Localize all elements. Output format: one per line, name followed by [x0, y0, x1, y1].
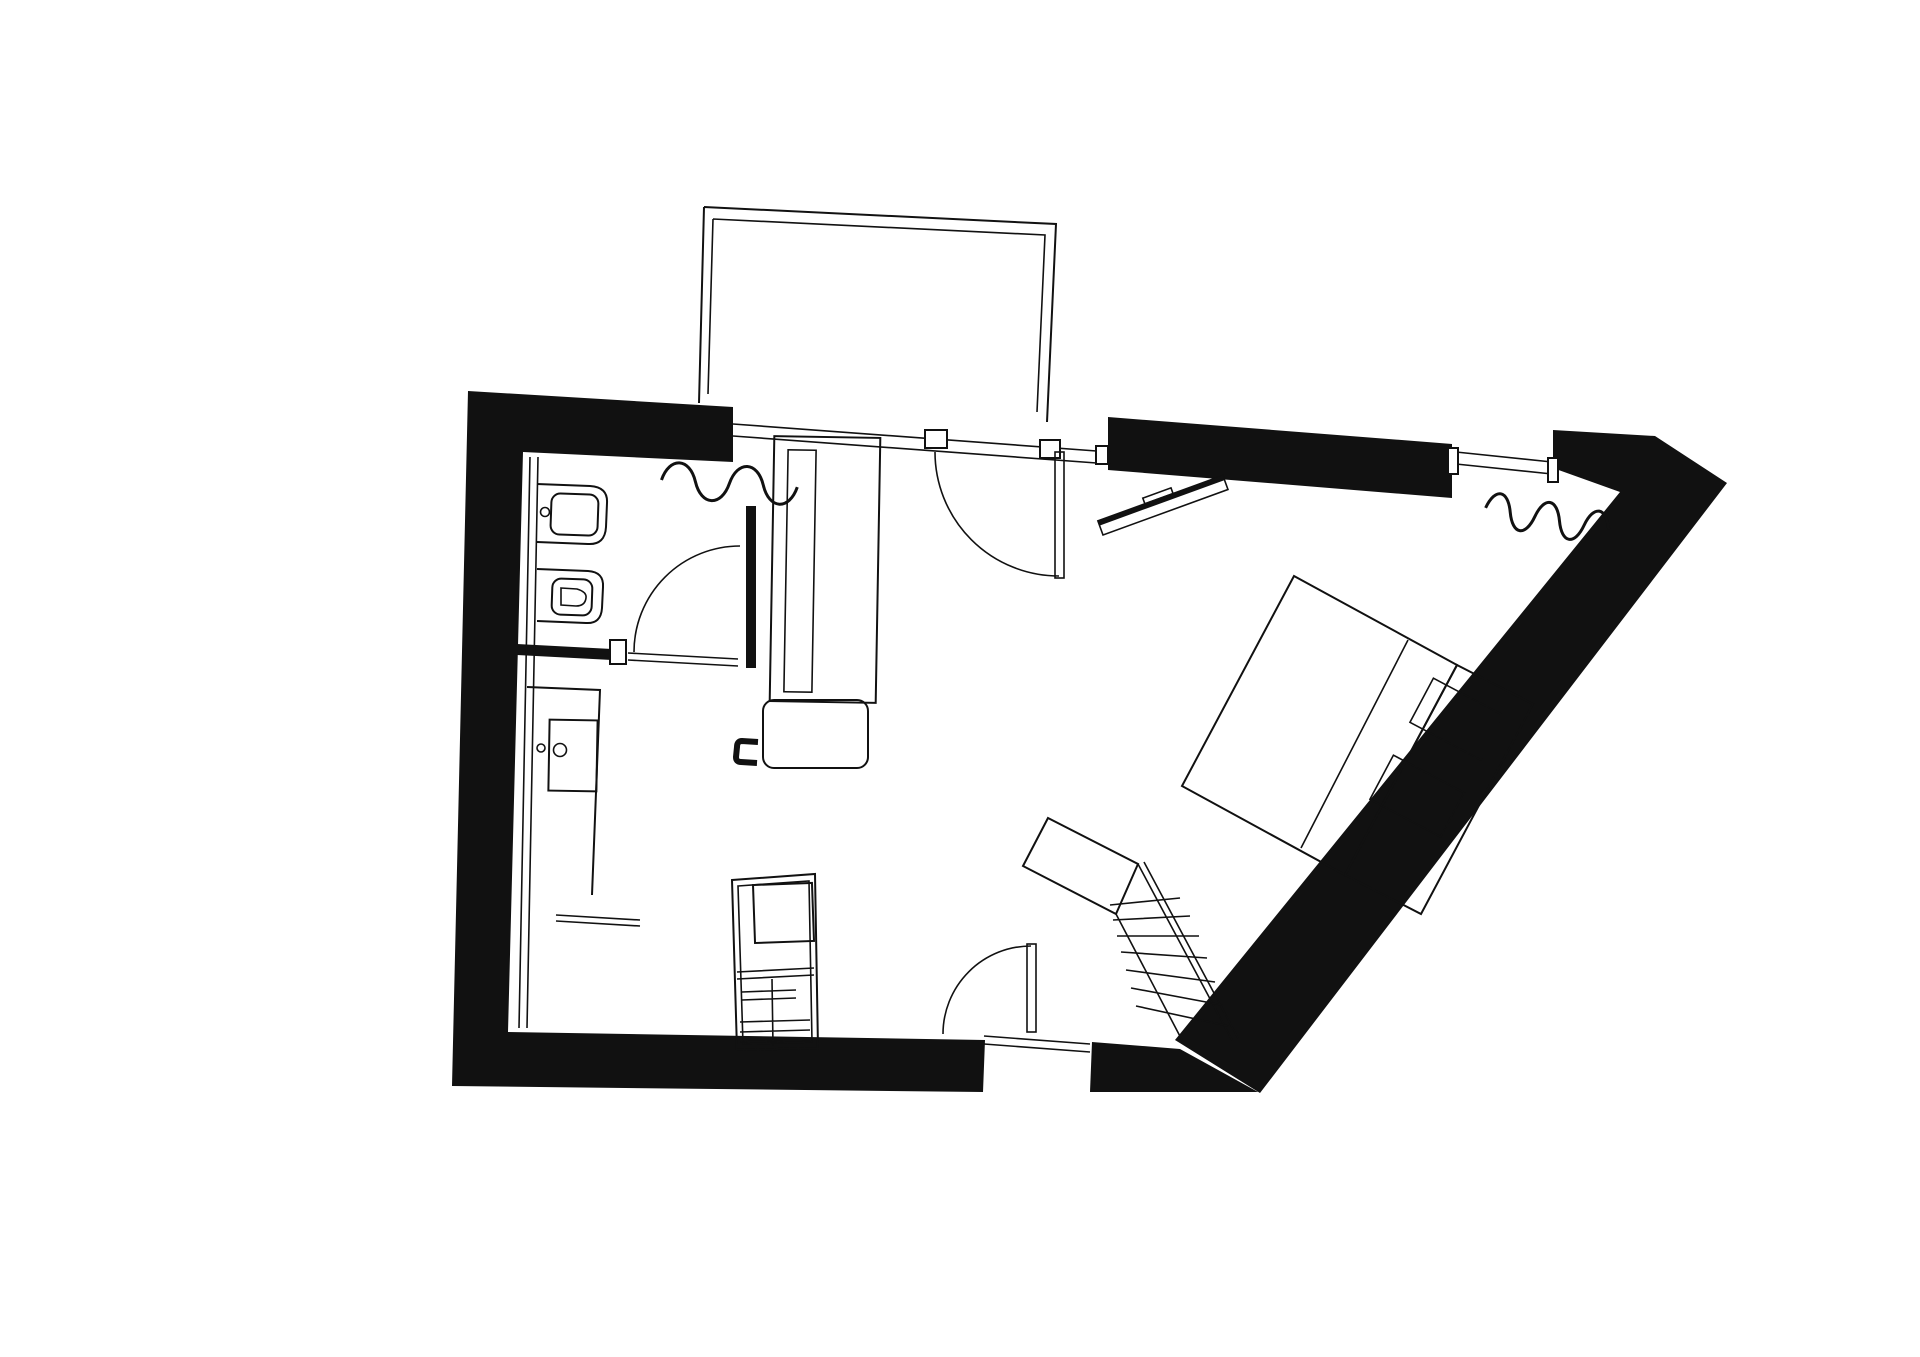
entrance-threshold — [984, 1036, 1090, 1052]
desk — [763, 700, 868, 768]
bathroom-finish-line — [519, 457, 538, 1028]
stair-landing — [1023, 818, 1138, 914]
kitchen-tap-icon — [537, 744, 545, 752]
right-window — [1456, 452, 1552, 474]
balcony-outer-edge — [699, 207, 1056, 422]
floor-plan: apartment-floor-plan — [0, 0, 1920, 1357]
wall-shelf — [1096, 470, 1228, 535]
walls — [452, 391, 1727, 1093]
stair-rail-left — [1116, 914, 1183, 1042]
glazing-post-right — [1040, 440, 1060, 458]
balcony-door-swing-arc — [935, 452, 1059, 576]
right-window-cap-left — [1448, 448, 1458, 474]
radiator-left-icon — [661, 462, 799, 505]
right-window-cap-right — [1548, 458, 1558, 482]
bathroom-door-leaf — [628, 653, 738, 666]
toilet-bowl — [561, 588, 586, 606]
balcony — [699, 207, 1056, 422]
storage-furniture — [736, 436, 880, 768]
entrance-door-swing-arc — [943, 946, 1031, 1034]
balcony-door-leaf — [1055, 452, 1064, 578]
kitchenette — [527, 687, 640, 926]
bathroom — [519, 457, 740, 1028]
chair — [736, 741, 758, 763]
entrance-door-leaf — [1027, 944, 1036, 1032]
washbasin-tap-icon — [541, 508, 550, 517]
washbasin — [537, 484, 607, 544]
lower-shelf — [556, 915, 640, 926]
kitchen-tap-icon — [554, 744, 567, 757]
floor-plan-canvas: apartment-floor-plan — [0, 0, 1920, 1357]
toilet — [537, 569, 603, 623]
glazing-end-cap — [1096, 446, 1108, 464]
appliance-window — [753, 883, 814, 943]
wall-right-diagonal — [1175, 430, 1727, 1093]
appliance-column — [732, 874, 818, 1050]
wall-stub-wardrobe-side — [746, 506, 756, 668]
wardrobe-sliding-door — [784, 450, 816, 692]
balcony-door — [935, 452, 1064, 578]
appliance-shelf-lines — [740, 979, 810, 1046]
wall-top-middle — [1108, 417, 1452, 498]
bathroom-door-swing-arc — [634, 546, 740, 652]
glazing-post-left — [925, 430, 947, 448]
balcony-inner-edge — [708, 219, 1045, 412]
entrance-door — [943, 944, 1090, 1052]
radiators — [661, 462, 1612, 546]
partition-end-cap — [610, 640, 626, 664]
bathroom-door — [628, 546, 740, 666]
wall-bathroom-partition — [517, 644, 612, 660]
